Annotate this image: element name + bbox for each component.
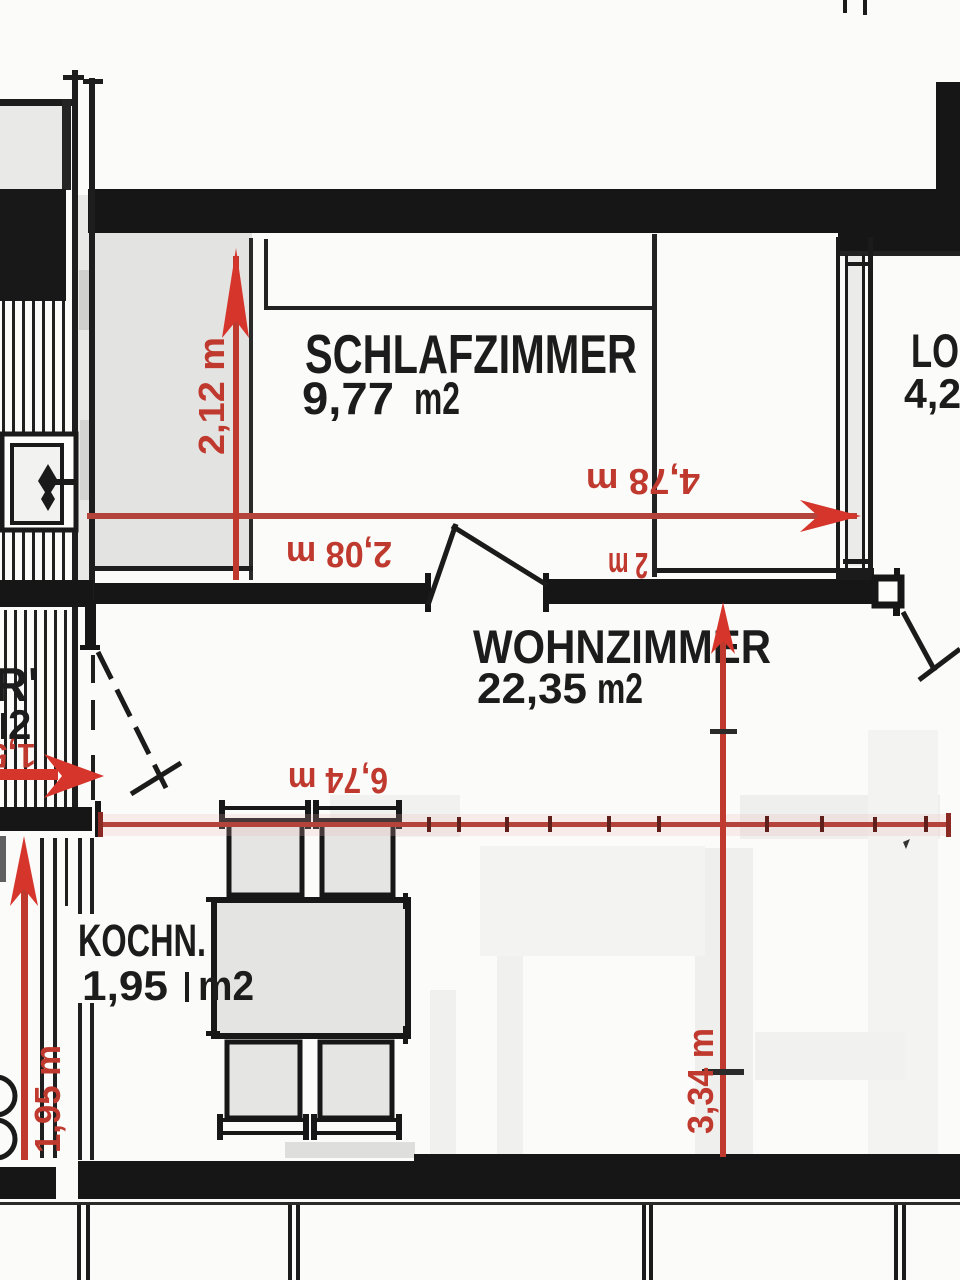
svg-text:6,74 m: 6,74 m: [288, 760, 388, 801]
svg-text:22,35: 22,35: [477, 665, 587, 713]
svg-text:KOCHN.: KOCHN.: [78, 915, 206, 966]
svg-text:m2: m2: [597, 665, 643, 713]
svg-text:1,5: 1,5: [0, 736, 36, 774]
svg-text:2,08 m: 2,08 m: [286, 534, 392, 575]
svg-text:3,34 m: 3,34 m: [680, 1028, 721, 1134]
svg-text:m2: m2: [414, 373, 460, 424]
svg-text:4,78 m: 4,78 m: [586, 461, 700, 502]
svg-text:9,77: 9,77: [302, 373, 394, 424]
svg-text:1,95: 1,95: [82, 962, 168, 1009]
svg-text:2 m: 2 m: [608, 545, 648, 586]
svg-text:m2: m2: [198, 962, 254, 1009]
svg-text:2,12 m: 2,12 m: [191, 337, 232, 455]
svg-text:1,95 m: 1,95 m: [27, 1045, 68, 1153]
svg-text:4,28: 4,28: [904, 370, 960, 417]
